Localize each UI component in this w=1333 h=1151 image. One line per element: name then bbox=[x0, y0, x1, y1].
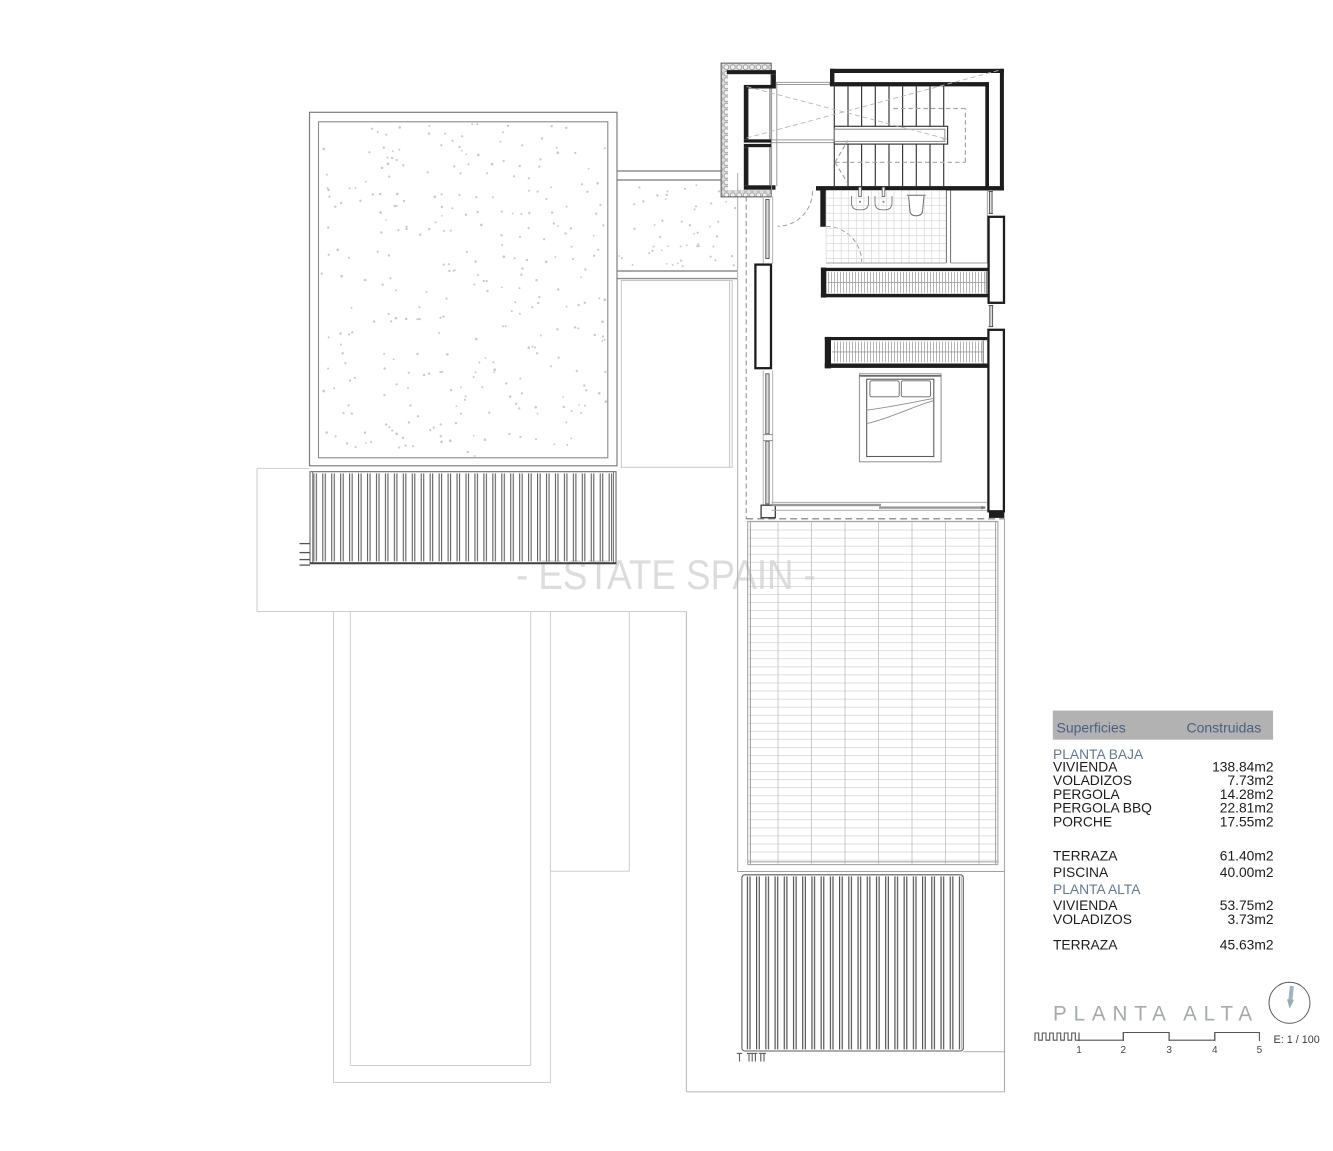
svg-text:3.73m2: 3.73m2 bbox=[1227, 912, 1273, 927]
svg-text:Construidas: Construidas bbox=[1187, 720, 1262, 736]
svg-text:5: 5 bbox=[1257, 1045, 1263, 1056]
svg-text:17.55m2: 17.55m2 bbox=[1220, 814, 1274, 829]
svg-text:PLANTA ALTA: PLANTA ALTA bbox=[1053, 882, 1141, 897]
svg-text:4: 4 bbox=[1212, 1045, 1218, 1056]
svg-text:TERRAZA: TERRAZA bbox=[1053, 848, 1118, 863]
svg-text:PLANTA ALTA: PLANTA ALTA bbox=[1053, 1003, 1259, 1026]
svg-text:PORCHE: PORCHE bbox=[1053, 814, 1112, 829]
svg-text:61.40m2: 61.40m2 bbox=[1220, 848, 1274, 863]
svg-text:53.75m2: 53.75m2 bbox=[1220, 898, 1274, 913]
svg-text:PERGOLA BBQ: PERGOLA BBQ bbox=[1053, 801, 1152, 816]
svg-text:22.81m2: 22.81m2 bbox=[1220, 801, 1274, 816]
svg-text:VIVIENDA: VIVIENDA bbox=[1053, 898, 1118, 913]
svg-text:45.63m2: 45.63m2 bbox=[1220, 937, 1274, 952]
svg-text:2: 2 bbox=[1121, 1045, 1127, 1056]
svg-text:PISCINA: PISCINA bbox=[1053, 865, 1109, 880]
svg-text:3: 3 bbox=[1166, 1045, 1172, 1056]
svg-text:TERRAZA: TERRAZA bbox=[1053, 937, 1118, 952]
svg-text:1: 1 bbox=[1076, 1045, 1082, 1056]
svg-text:VOLADIZOS: VOLADIZOS bbox=[1053, 912, 1132, 927]
svg-text:40.00m2: 40.00m2 bbox=[1220, 865, 1274, 880]
svg-text:Superficies: Superficies bbox=[1057, 720, 1126, 736]
svg-text:E: 1 / 100: E: 1 / 100 bbox=[1274, 1034, 1320, 1046]
